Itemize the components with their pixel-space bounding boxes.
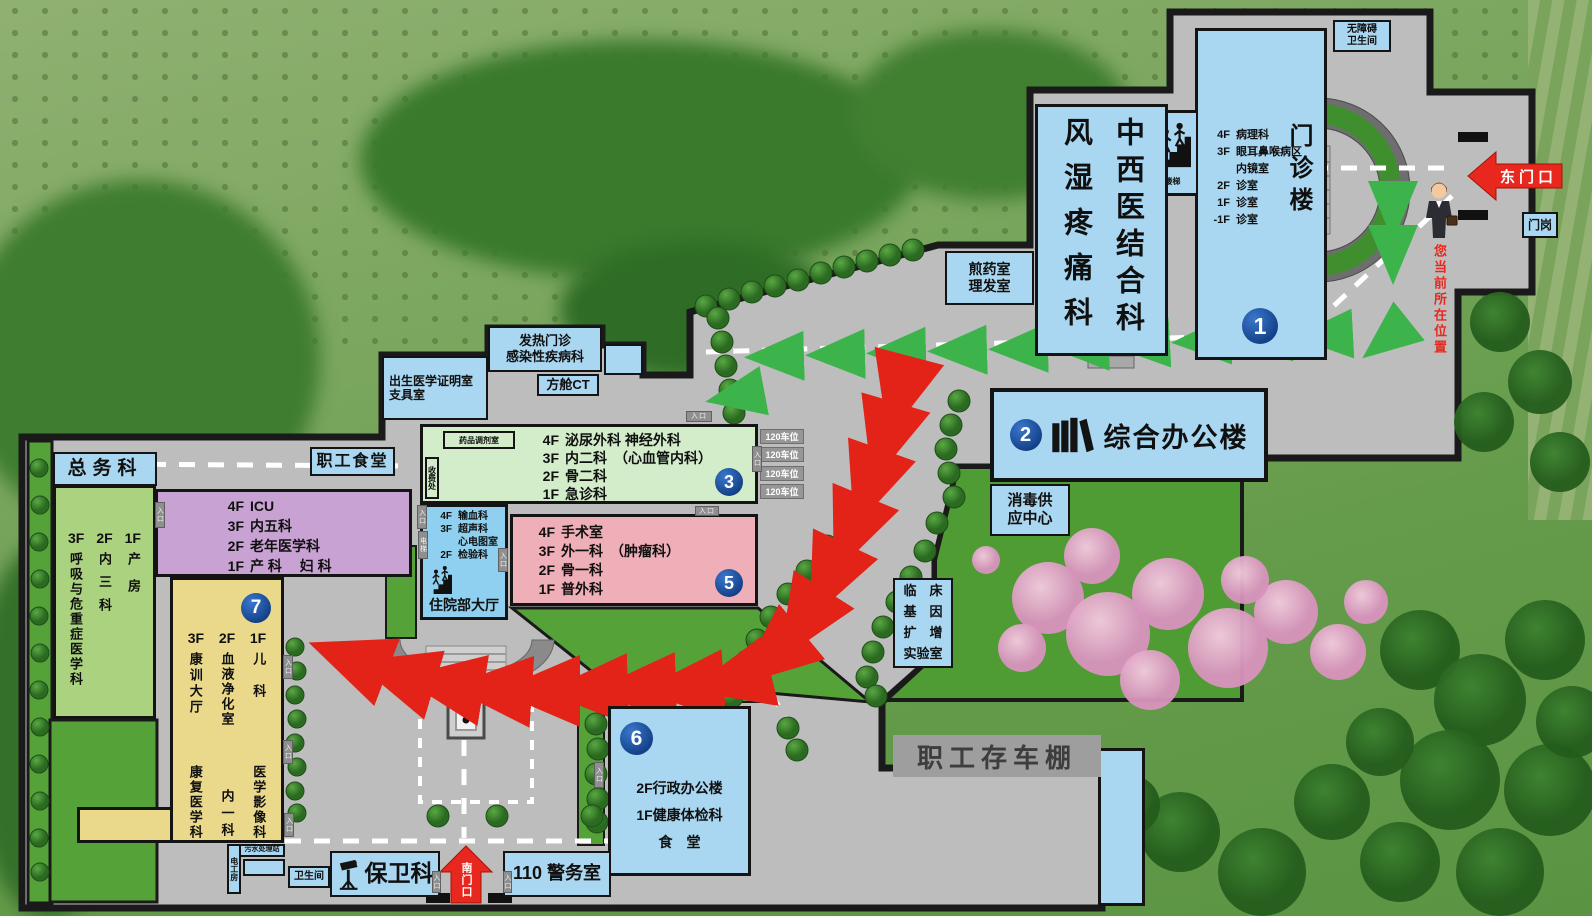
general-affairs-label: 总务科 <box>53 452 157 486</box>
building-1-outpatient: 4F病理科3F眼耳鼻喉病区内镜室2F诊室1F诊室-1F诊室 门诊楼 1 <box>1195 28 1327 360</box>
west-header-3f: 3F <box>68 530 84 546</box>
label-line: 无障碍 <box>1347 24 1377 36</box>
b7-header-3f: 3F <box>188 630 204 646</box>
entrance-tab: 入口 <box>155 502 165 528</box>
books-icon <box>1052 416 1094 454</box>
b3-floor-list: 4F泌尿外科 神经外科3F内二科 （心血管内科）2F骨二科1F急诊科 <box>531 431 712 503</box>
entrance-tab: 入口 <box>432 871 441 893</box>
b7-header-2f: 2F <box>219 630 235 646</box>
tcm-right-column: 中西医结合科 <box>1107 117 1149 353</box>
floor-row: 4F泌尿外科 神经外科 <box>531 431 712 449</box>
cabin-ct-label: 方舱CT <box>537 374 599 396</box>
b7-col-2f: 血液净化室 内一科 <box>218 652 237 840</box>
label-line: 临 床 <box>903 581 942 602</box>
wc-label: 卫生间 <box>288 866 330 888</box>
parking-120-label: 120车位 <box>760 447 804 462</box>
b6-lines: 2F行政办公楼1F健康体检科食 堂 <box>611 775 748 856</box>
birth-cert-label: 出生医学证明室支具室 <box>382 356 488 420</box>
building-west: 3F 2F 1F 呼吸与危重症医学科 内三科 产房 <box>53 485 156 719</box>
floor-row: 2F骨二科 <box>531 467 712 485</box>
b7-col-1f-top: 儿 科 <box>249 652 268 700</box>
west-col-1f: 产房 <box>124 552 143 712</box>
entrance-tab: 入口 <box>695 506 719 516</box>
entrance-tab: 入口 <box>503 871 512 893</box>
b1-number-badge: 1 <box>1242 308 1278 344</box>
building-7-annex <box>77 807 170 843</box>
building-purple: 4FICU3F内五科2F老年医学科1F产 科 妇 科 <box>155 489 412 577</box>
label-line: 卫生间 <box>1347 36 1377 48</box>
cashier-room: 收费处 <box>425 457 439 499</box>
label-line: 实验室 <box>903 644 942 665</box>
label-line: 食 堂 <box>611 829 748 856</box>
west-col-2f: 内三科 <box>95 552 114 712</box>
entrance-tab: 入口 <box>594 762 604 788</box>
west-col-3f: 呼吸与危重症医学科 <box>66 552 85 712</box>
you-are-here-text: 您当前所在位置 <box>1430 244 1449 356</box>
building-6: 6 2F行政办公楼1F健康体检科食 堂 <box>608 706 751 876</box>
b7-number-badge: 7 <box>241 593 271 623</box>
floor-row: 4FICU <box>216 496 332 516</box>
parking-120-label: 120车位 <box>760 429 804 444</box>
gene-lab-label: 临 床基 因扩 增实验室 <box>893 578 953 668</box>
west-columns: 呼吸与危重症医学科 内三科 产房 <box>56 552 153 712</box>
electric-room-label: 电工房 <box>227 844 241 894</box>
floor-row: 3F内五科 <box>216 516 332 536</box>
floor-row: 2F骨一科 <box>527 561 680 580</box>
gate-post-label: 门岗 <box>1522 212 1558 238</box>
b3-number-badge: 3 <box>715 468 743 496</box>
stairs-icon <box>428 565 452 595</box>
label-line: 感染性疾病科 <box>506 349 584 365</box>
security-label: 保卫科 <box>330 851 440 897</box>
west-headers: 3F 2F 1F <box>56 530 153 546</box>
floor-row: 3F内二科 （心血管内科） <box>531 449 712 467</box>
fever-clinic-label: 发热门诊感染性疾病科 <box>488 326 602 372</box>
parking-120-label: 120车位 <box>760 484 804 499</box>
building-hall: 4F输血科3F超声科心电图室2F检验科 住院部大厅 <box>420 504 508 620</box>
entrance-tab: 入口 <box>283 740 293 764</box>
bike-shed-label: 职工存车棚 <box>893 735 1101 777</box>
fountain-dot <box>463 717 470 724</box>
pharmacy-room: 药品调剂室 <box>443 431 515 449</box>
b1-title: 门诊楼 <box>1281 123 1316 219</box>
purple-floor-list: 4FICU3F内五科2F老年医学科1F产 科 妇 科 <box>216 496 332 576</box>
label-line: 消毒供 <box>1007 492 1052 510</box>
disinfection-label: 消毒供应中心 <box>990 484 1070 536</box>
b5-number-badge: 5 <box>715 569 743 597</box>
floor-row: 1F普外科 <box>527 580 680 599</box>
entrance-tab: 入口 <box>284 813 294 837</box>
tcm-steps <box>1088 356 1134 368</box>
entrance-tab: 入口 <box>686 411 712 422</box>
b7-col-3f-bottom: 康复医学科 <box>186 765 205 840</box>
b7-col-3f-top: 康训大厅 <box>186 652 205 716</box>
building-7: 7 3F 2F 1F 康训大厅 康复医学科 血液净化室 内一科 儿 科 医学影像… <box>170 577 284 843</box>
staff-canteen-label: 职工食堂 <box>310 447 395 476</box>
b2-content: 2 综合办公楼 <box>994 392 1264 478</box>
entrance-tab: 入口 <box>417 505 427 529</box>
b2-number-badge: 2 <box>1010 419 1042 451</box>
entrance-tab: 入口 <box>498 548 508 572</box>
building-3: 药品调剂室 收费处 4F泌尿外科 神经外科3F内二科 （心血管内科）2F骨二科1… <box>420 424 758 504</box>
label-line: 应中心 <box>1007 510 1052 528</box>
security-text: 保卫科 <box>365 860 434 888</box>
floor-row: 1F产 科 妇 科 <box>216 556 332 576</box>
floor-row: 1F急诊科 <box>531 485 712 503</box>
building-5: 4F手术室3F外一科 （肿瘤科）2F骨一科1F普外科 5 <box>510 514 758 606</box>
label-line: 煎药室 <box>969 261 1011 278</box>
label-line: 1F健康体检科 <box>611 802 748 829</box>
south-gate-text: 南门口 <box>458 862 474 898</box>
floor-row: 4F输血科 <box>432 510 498 523</box>
label-line: 出生医学证明室 <box>389 374 473 388</box>
hospital-campus-map: 4F病理科3F眼耳鼻喉病区内镜室2F诊室1F诊室-1F诊室 门诊楼 1 楼梯 风… <box>0 0 1592 916</box>
label-line: 扩 增 <box>903 623 942 644</box>
entrance-tab: 入口 <box>283 655 293 679</box>
floor-row: 3F外一科 （肿瘤科） <box>527 542 680 561</box>
label-line: 理发室 <box>969 278 1011 295</box>
tcm-left-column: 风湿疼痛科 <box>1055 117 1097 353</box>
b2-title: 综合办公楼 <box>1104 416 1249 455</box>
label-line: 支具室 <box>389 388 425 402</box>
elevator-tab: 电梯 <box>418 531 428 559</box>
b7-columns: 康训大厅 康复医学科 血液净化室 内一科 儿 科 医学影像科 <box>173 652 281 840</box>
floor-row: 2F老年医学科 <box>216 536 332 556</box>
b7-col-2f-bottom: 内一科 <box>218 789 237 840</box>
label-line: 发热门诊 <box>519 333 571 349</box>
east-gate-text: 东门口 <box>1500 166 1557 187</box>
building-tcm: 风湿疼痛科 中西医结合科 <box>1035 104 1168 356</box>
label-line: 基 因 <box>903 602 942 623</box>
small-blue-box <box>604 344 643 375</box>
label-line: 2F行政办公楼 <box>611 775 748 802</box>
security-camera-icon <box>337 857 361 891</box>
b7-header-1f: 1F <box>250 630 266 646</box>
b7-col-1f-bottom: 医学影像科 <box>249 765 268 840</box>
floor-row: 4F手术室 <box>527 523 680 542</box>
b5-floor-list: 4F手术室3F外一科 （肿瘤科）2F骨一科1F普外科 <box>527 523 680 599</box>
b7-col-2f-top: 血液净化室 <box>218 652 237 727</box>
building-2-office: 2 综合办公楼 <box>990 388 1268 482</box>
police-label: 110 警务室 <box>503 851 611 897</box>
building-bottom-right <box>1098 748 1145 906</box>
west-header-2f: 2F <box>96 530 112 546</box>
accessible-wc-label: 无障碍卫生间 <box>1333 20 1391 52</box>
parking-120-label: 120车位 <box>760 466 804 481</box>
entrance-tab: 入口 <box>752 446 762 472</box>
b6-number-badge: 6 <box>620 722 653 755</box>
hall-title: 住院部大厅 <box>423 595 505 615</box>
sewage-label: 污水处理站 <box>239 844 285 857</box>
b7-col-3f: 康训大厅 康复医学科 <box>186 652 205 840</box>
floor-row: 2F检验科 <box>432 549 498 562</box>
small-blue-box <box>243 859 285 876</box>
b7-col-1f: 儿 科 医学影像科 <box>249 652 268 840</box>
floor-row: 心电图室 <box>432 536 498 549</box>
floor-row: 3F超声科 <box>432 523 498 536</box>
hall-floor-list: 4F输血科3F超声科心电图室2F检验科 <box>432 510 498 562</box>
decoction-barber-label: 煎药室理发室 <box>945 251 1034 305</box>
west-header-1f: 1F <box>125 530 141 546</box>
b7-headers: 3F 2F 1F <box>173 630 281 646</box>
